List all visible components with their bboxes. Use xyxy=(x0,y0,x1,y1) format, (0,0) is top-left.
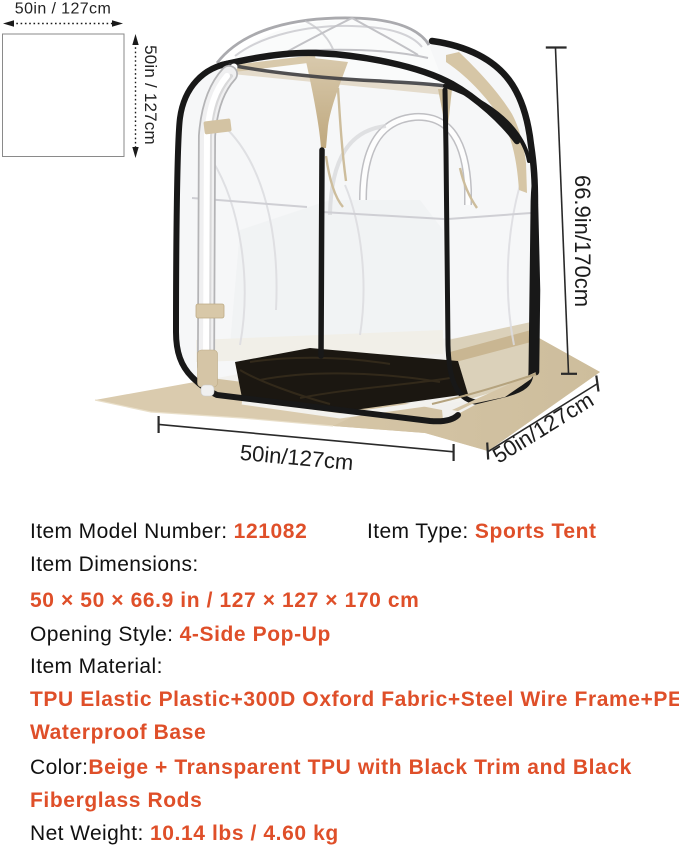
svg-text:66.9in/170cm: 66.9in/170cm xyxy=(570,175,595,307)
svg-text:50in / 127cm: 50in / 127cm xyxy=(15,1,111,18)
svg-text:50in / 127cm: 50in / 127cm xyxy=(141,45,160,145)
svg-text:50in/127cm: 50in/127cm xyxy=(239,440,355,475)
